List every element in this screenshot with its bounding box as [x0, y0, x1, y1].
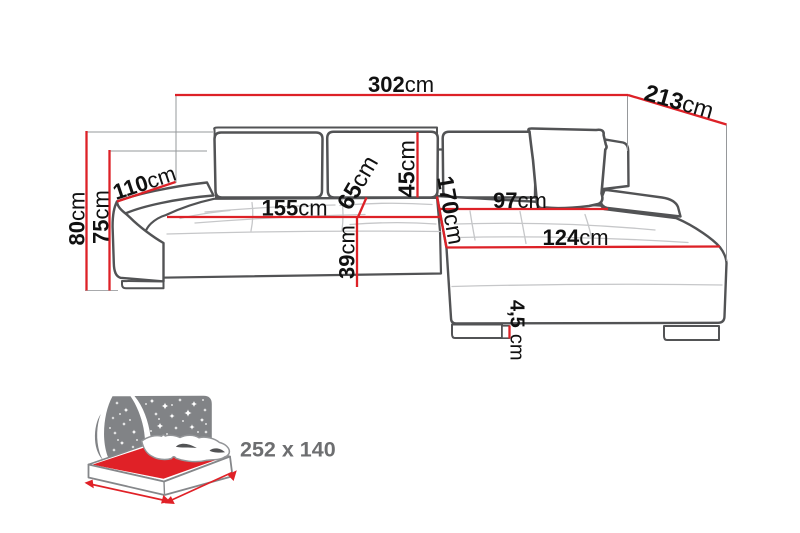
svg-text:155cm: 155cm [262, 196, 328, 221]
svg-text:39cm: 39cm [335, 225, 360, 279]
svg-text:80cm: 80cm [65, 192, 90, 246]
svg-text:45cm: 45cm [394, 140, 420, 197]
svg-text:124cm: 124cm [543, 225, 609, 250]
svg-text:252 x 140: 252 x 140 [240, 438, 336, 462]
svg-text:302cm: 302cm [368, 72, 434, 97]
svg-text:75cm: 75cm [89, 190, 114, 244]
svg-text:97cm: 97cm [493, 188, 547, 213]
